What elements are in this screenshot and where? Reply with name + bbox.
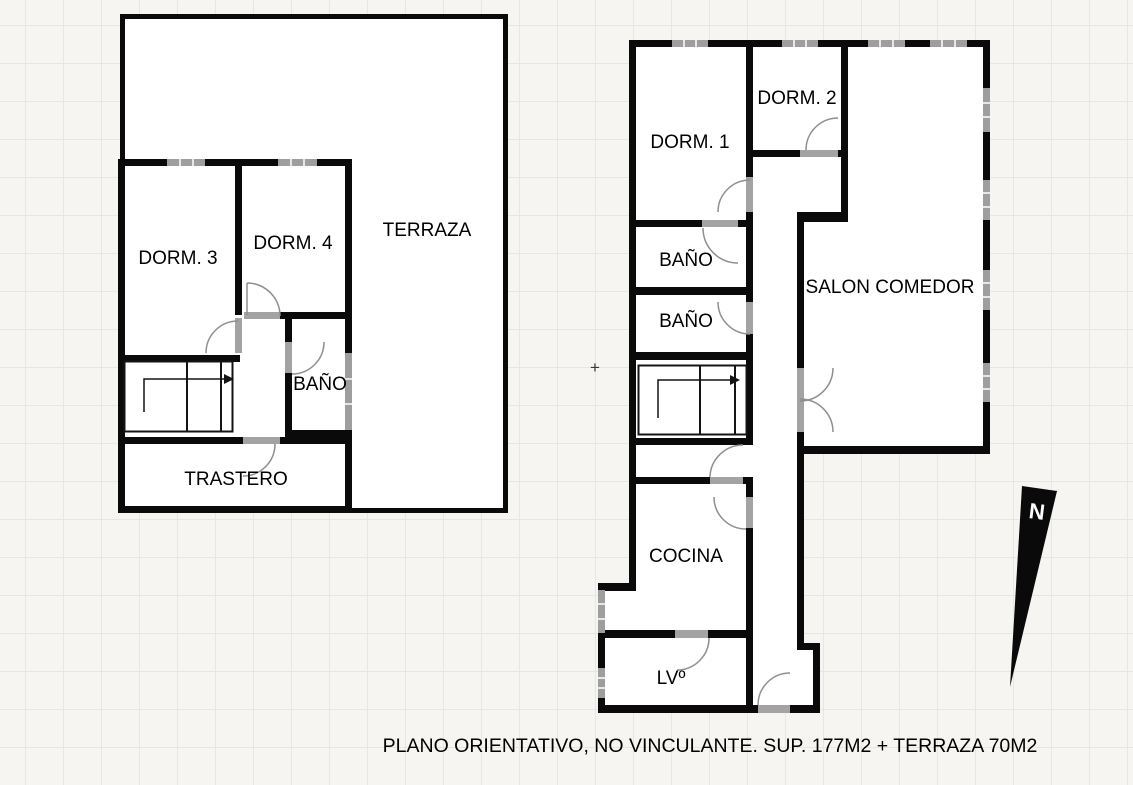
room-label-bano-left: BAÑO: [293, 373, 347, 395]
north-arrow-icon: N: [1010, 486, 1057, 687]
north-label: N: [1028, 498, 1047, 525]
room-label-cocina: COCINA: [649, 546, 723, 567]
floorplan-canvas: DORM. 3 DORM. 4 TERRAZA BAÑO TRASTERO: [0, 0, 1133, 785]
room-label-dorm-4: DORM. 4: [253, 233, 333, 254]
room-label-dorm-3: DORM. 3: [138, 248, 217, 269]
room-label-terraza: TERRAZA: [383, 220, 472, 241]
room-label-trastero: TRASTERO: [184, 469, 287, 490]
room-label-salon-comedor: SALON COMEDOR: [806, 277, 975, 298]
room-label-dorm-1: DORM. 1: [650, 132, 729, 153]
room-label-bano-2: BAÑO: [659, 310, 713, 332]
room-label-dorm-2: DORM. 2: [757, 88, 836, 109]
plans-divider-plus-marker: +: [590, 358, 600, 377]
right-plan: DORM. 1 DORM. 2 BAÑO BAÑO SALON COMEDOR …: [598, 40, 990, 713]
plan-caption: PLANO ORIENTATIVO, NO VINCULANTE. SUP. 1…: [383, 735, 1038, 757]
room-label-bano-1: BAÑO: [659, 249, 713, 271]
room-label-lavadero: LVº: [657, 668, 686, 689]
floorplan-page: DORM. 3 DORM. 4 TERRAZA BAÑO TRASTERO: [0, 0, 1133, 785]
left-plan: DORM. 3 DORM. 4 TERRAZA BAÑO TRASTERO: [118, 14, 508, 513]
